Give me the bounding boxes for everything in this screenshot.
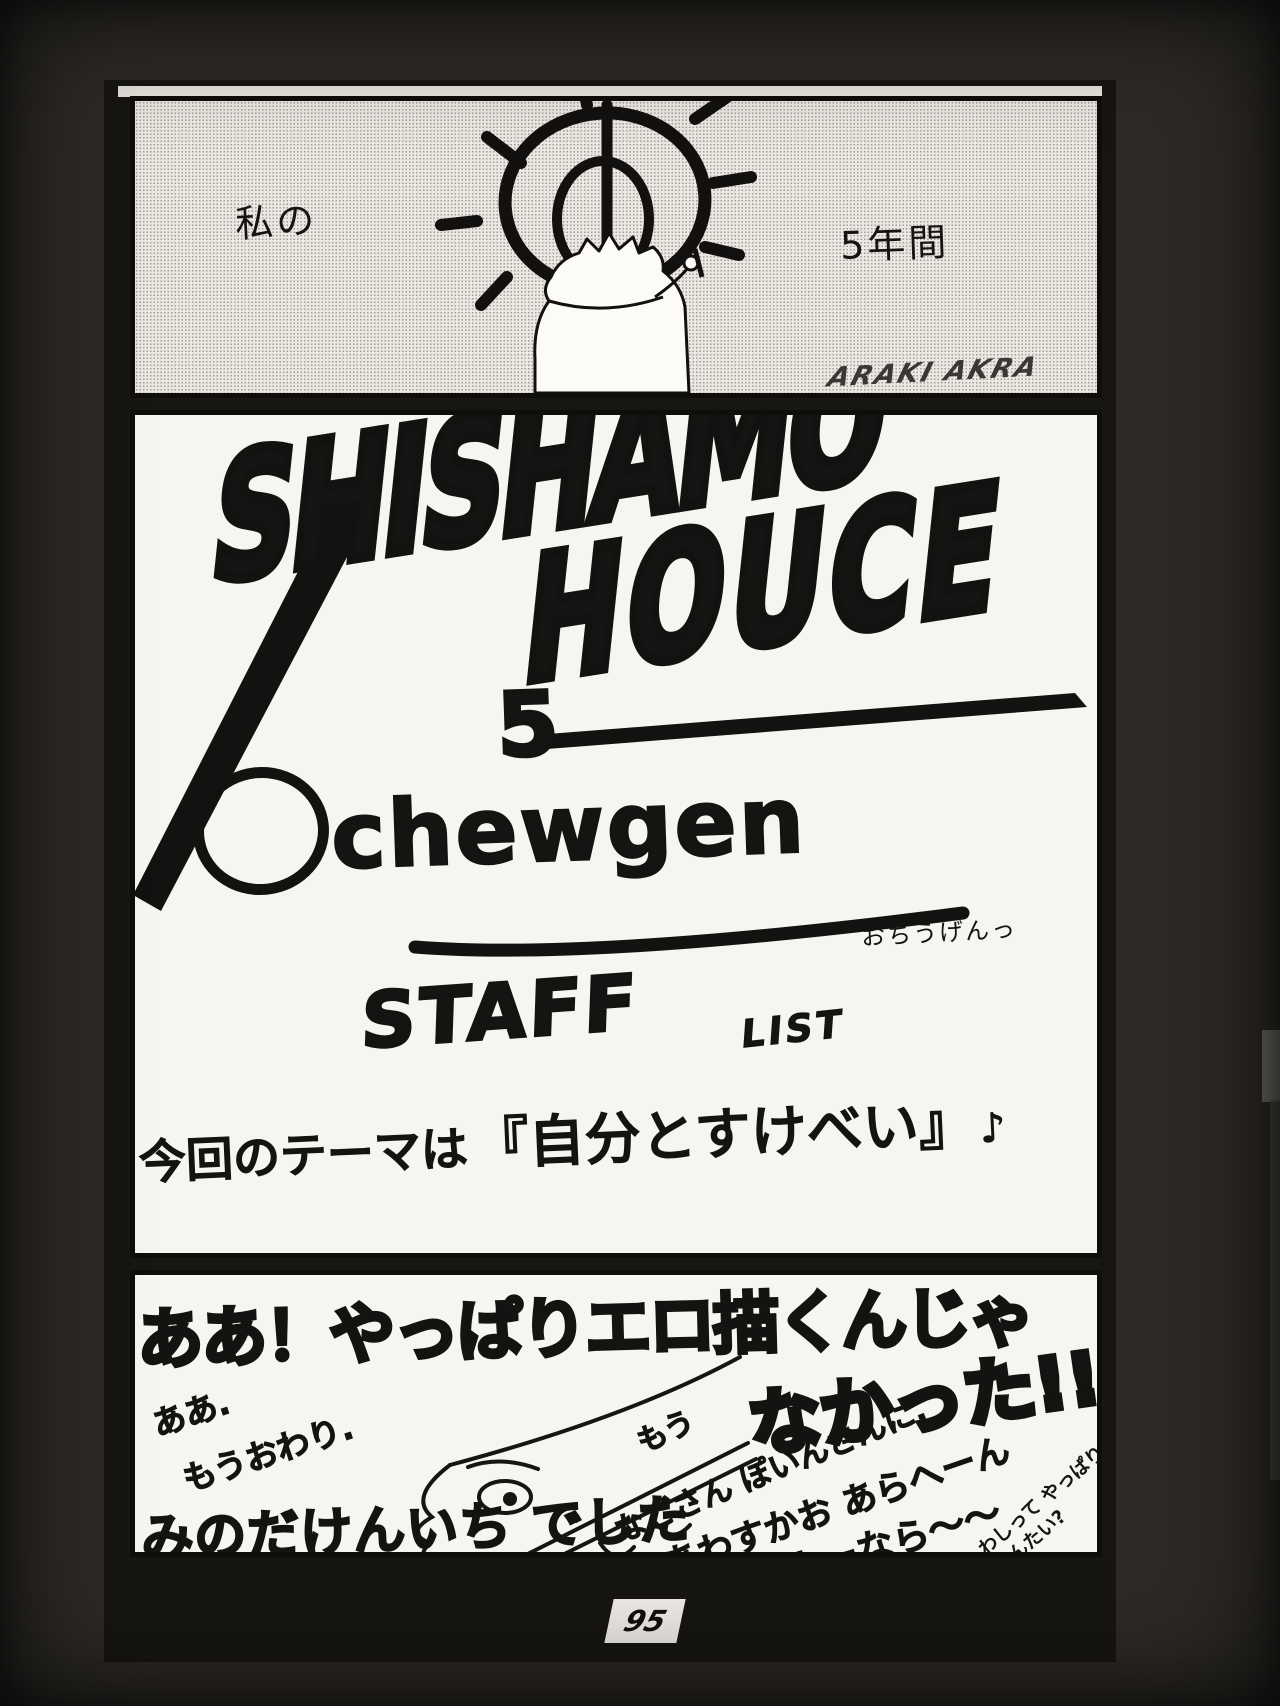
scan-edge-artifact xyxy=(1262,1030,1280,1102)
bottom-panel: ああ！やっぱりエロ描くんじゃ なかった!! ああ. もうおわり. もう なごさん… xyxy=(130,1270,1102,1557)
top-panel: 私の 5年間 xyxy=(130,96,1102,398)
scanned-page: 私の 5年間 xyxy=(104,80,1116,1662)
note-ah: ああ. xyxy=(146,1376,236,1446)
subtitle-furigana: おちうげんっ xyxy=(860,909,1018,952)
scan-edge-strip xyxy=(1270,1100,1280,1480)
theme-line: 今回のテーマは 『自分とすけべい』 ♪ xyxy=(137,1073,1098,1196)
staff-label: STAFF xyxy=(360,957,641,1066)
page-number-box: 95 xyxy=(604,1599,685,1643)
title-panel: SHISHAMO HOUCE 5 chewgen おちうげんっ STAFF LI… xyxy=(130,410,1102,1258)
page-number: 95 xyxy=(619,1604,670,1638)
theme-quoted: 『自分とすけべい』 xyxy=(471,1092,976,1179)
scanned-comic-page-background: { "page": { "number": "95" }, "colors": … xyxy=(0,0,1280,1706)
list-label: LIST xyxy=(740,1001,846,1056)
theme-music-note: ♪ xyxy=(979,1105,1007,1152)
volume-number: 5 xyxy=(495,672,560,777)
sun-and-character-drawing xyxy=(135,101,1097,393)
subtitle-ochewgen: chewgen xyxy=(329,767,808,891)
theme-prefix: 今回のテーマは xyxy=(138,1122,469,1191)
page-footer: 95 xyxy=(104,1557,1116,1662)
houce-underline-stroke xyxy=(535,693,1095,753)
